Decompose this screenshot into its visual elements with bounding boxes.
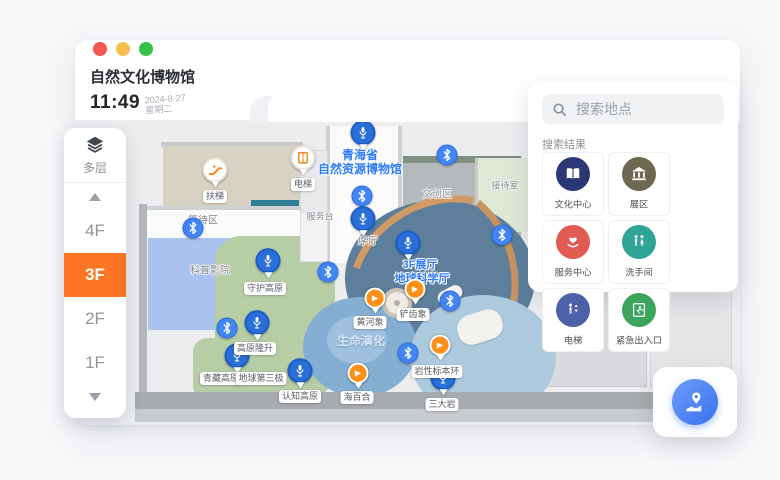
floor-item-1f[interactable]: 1F [64, 341, 126, 385]
video-pin-yellow-river-elephant[interactable]: ▶ [365, 288, 386, 318]
bluetooth-beacon[interactable] [398, 343, 419, 364]
bluetooth-beacon[interactable] [318, 262, 339, 283]
microphone-icon [245, 310, 270, 335]
search-input[interactable] [574, 100, 708, 118]
elevator-icon [556, 293, 590, 327]
play-icon: ▶ [430, 335, 451, 356]
pin-label-cognition-plateau: 认知高原 [279, 390, 321, 403]
pin-label-guard-plateau: 守护高原 [244, 282, 286, 295]
emergency-exit-icon [622, 293, 656, 327]
bluetooth-beacon[interactable] [440, 291, 461, 312]
audio-pin[interactable] [351, 120, 376, 154]
wall-bottom-dark [135, 392, 680, 409]
round-exhibit-center [394, 300, 400, 306]
floor-up-button[interactable] [64, 183, 126, 209]
pin-label-elevator: 电梯 [291, 178, 315, 191]
facility-pin-elevator[interactable] [291, 145, 316, 179]
close-window-button[interactable] [93, 42, 107, 56]
category-exhibition-area[interactable]: 展区 [608, 152, 670, 216]
search-icon [552, 102, 567, 117]
floor-down-button[interactable] [64, 385, 126, 411]
video-pin-sea-lily[interactable]: ▶ [348, 363, 369, 393]
audio-pin-cognition-plateau[interactable] [288, 358, 313, 392]
pin-label-rock-ring: 岩性标本环 [411, 365, 462, 378]
search-results-label: 搜索结果 [542, 136, 586, 152]
pin-label-plateau-uplift: 高原隆升 [234, 342, 276, 355]
audio-pin-guard-plateau[interactable] [256, 248, 281, 282]
window-controls [93, 42, 153, 56]
locate-card [653, 367, 737, 437]
bluetooth-beacon[interactable] [437, 145, 458, 166]
museum-icon [622, 157, 656, 191]
category-label: 紧急出入口 [616, 333, 662, 347]
category-grid: 文化中心 展区 服务中心 洗手间 电梯 紧急出入口 [542, 152, 738, 356]
clock: 11:49 2024-8-27 星期二 [90, 92, 186, 114]
maximize-window-button[interactable] [139, 42, 153, 56]
pin-label-three-rocks: 三大岩 [425, 398, 458, 411]
chevron-down-icon [89, 393, 101, 407]
play-icon: ▶ [365, 288, 386, 309]
category-emergency-exit[interactable]: 紧急出入口 [608, 288, 670, 352]
category-label: 文化中心 [555, 197, 592, 211]
floor-item-4f[interactable]: 4F [64, 209, 126, 253]
room-label-cinema: 科普影院 [190, 262, 230, 277]
restroom-icon [622, 225, 656, 259]
audio-pin-plateau-uplift[interactable] [245, 310, 270, 344]
wall-left [139, 204, 147, 404]
bluetooth-beacon[interactable] [217, 318, 238, 339]
audio-pin-hall[interactable] [396, 230, 421, 264]
minimize-window-button[interactable] [116, 42, 130, 56]
search-box[interactable] [542, 94, 724, 124]
category-elevator[interactable]: 电梯 [542, 288, 604, 352]
floor-item-3f-active[interactable]: 3F [64, 253, 126, 297]
pin-label-shovel-tusker: 铲齿象 [396, 308, 429, 321]
layers-label: 多层 [83, 159, 107, 176]
facility-pin-escalator[interactable] [203, 157, 228, 191]
category-label: 展区 [630, 197, 648, 211]
play-icon: ▶ [348, 363, 369, 384]
bluetooth-beacon[interactable] [183, 218, 204, 239]
time-value: 11:49 [90, 92, 140, 114]
pin-label-third-pole: 地球第三极 [235, 372, 286, 385]
category-culture-center[interactable]: 文化中心 [542, 152, 604, 216]
category-label: 洗手间 [625, 265, 653, 279]
room-label-reception: 接待室 [491, 179, 518, 192]
category-service-center[interactable]: 服务中心 [542, 220, 604, 284]
floor-item-2f[interactable]: 2F [64, 297, 126, 341]
escalator-icon [203, 157, 228, 182]
heart-hands-icon [556, 225, 590, 259]
microphone-icon [396, 230, 421, 255]
pin-label-yellow-river-elephant: 黄河象 [353, 316, 386, 329]
pin-label-escalator: 扶梯 [203, 190, 227, 203]
microphone-icon [351, 206, 376, 231]
pin-label-sea-lily: 海百合 [340, 391, 373, 404]
room-label-cultural-zone: 文创区 [422, 186, 452, 201]
play-icon: ▶ [405, 279, 426, 300]
bluetooth-beacon[interactable] [492, 225, 513, 246]
search-panel: 搜索结果 文化中心 展区 服务中心 洗手间 电梯 紧急出入口 [528, 82, 738, 292]
page-title: 自然文化博物馆 [90, 66, 195, 87]
video-pin-rock-ring[interactable]: ▶ [430, 335, 451, 365]
chevron-up-icon [89, 187, 101, 201]
microphone-icon [351, 120, 376, 145]
building-title-line2: 自然资源博物馆 [318, 160, 402, 177]
category-label: 服务中心 [555, 265, 592, 279]
wall-bottom-light [135, 409, 680, 422]
layers-icon [84, 134, 106, 156]
category-restroom[interactable]: 洗手间 [608, 220, 670, 284]
video-pin-shovel-tusker[interactable]: ▶ [405, 279, 426, 309]
microphone-icon [288, 358, 313, 383]
floor-selector: 多层 4F 3F 2F 1F [64, 128, 126, 418]
weekday-value: 星期二 [145, 103, 187, 116]
room-label-service-desk: 服务台 [306, 210, 333, 223]
elevator-door-icon [291, 145, 316, 170]
area-label-life-evolution: 生命演化 [337, 332, 385, 349]
audio-pin-lobby[interactable] [351, 206, 376, 240]
microphone-icon [256, 248, 281, 273]
category-label: 电梯 [564, 333, 582, 347]
locate-button[interactable] [672, 379, 718, 425]
map-pin-icon [682, 389, 708, 415]
book-icon [556, 157, 590, 191]
bluetooth-beacon[interactable] [352, 186, 373, 207]
layers-header[interactable]: 多层 [64, 128, 126, 183]
